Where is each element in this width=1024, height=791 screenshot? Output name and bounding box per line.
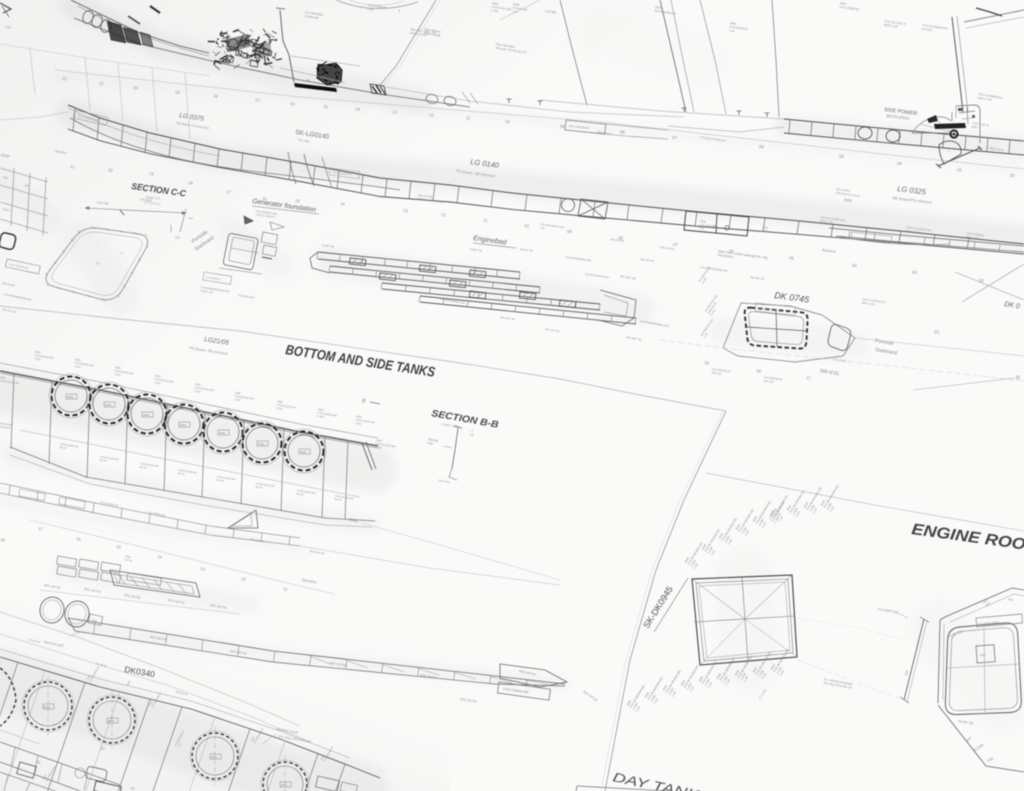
- svg-text:(h4i): (h4i): [258, 442, 264, 446]
- svg-text:(h4i): (h4i): [180, 423, 186, 427]
- svg-text:(h4i): (h4i): [300, 450, 306, 454]
- svg-text:L-0#: L-0#: [729, 28, 736, 33]
- svg-text:(h4i): (h4i): [143, 413, 149, 417]
- svg-text:(h4i): (h4i): [67, 395, 73, 399]
- svg-text:(h4i): (h4i): [105, 403, 111, 407]
- svg-text:(h4i): (h4i): [211, 755, 217, 759]
- svg-text:14: 14: [306, 78, 310, 83]
- svg-text:(h4i): (h4i): [219, 431, 225, 435]
- svg-text:(h4i): (h4i): [44, 705, 50, 709]
- svg-text:(h4i): (h4i): [281, 783, 287, 787]
- svg-text:(h4i): (h4i): [108, 719, 114, 723]
- svg-text:+: +: [948, 149, 950, 153]
- svg-text:LH6: LH6: [5, 25, 12, 30]
